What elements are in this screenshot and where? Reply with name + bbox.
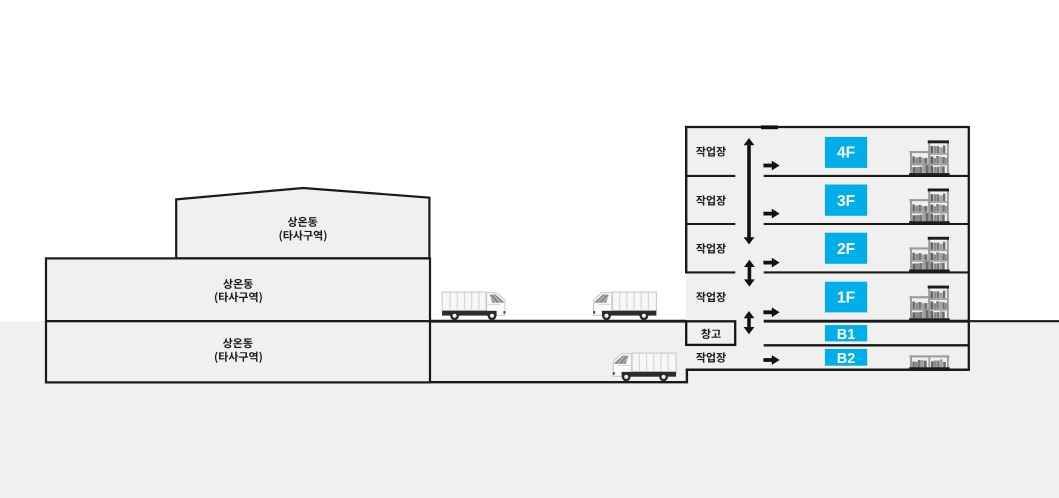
svg-text:4F: 4F bbox=[837, 145, 855, 162]
svg-text:2F: 2F bbox=[837, 241, 855, 258]
svg-text:B2: B2 bbox=[837, 351, 856, 367]
svg-text:3F: 3F bbox=[837, 193, 855, 210]
svg-text:1F: 1F bbox=[837, 290, 855, 307]
svg-text:B1: B1 bbox=[837, 327, 856, 343]
